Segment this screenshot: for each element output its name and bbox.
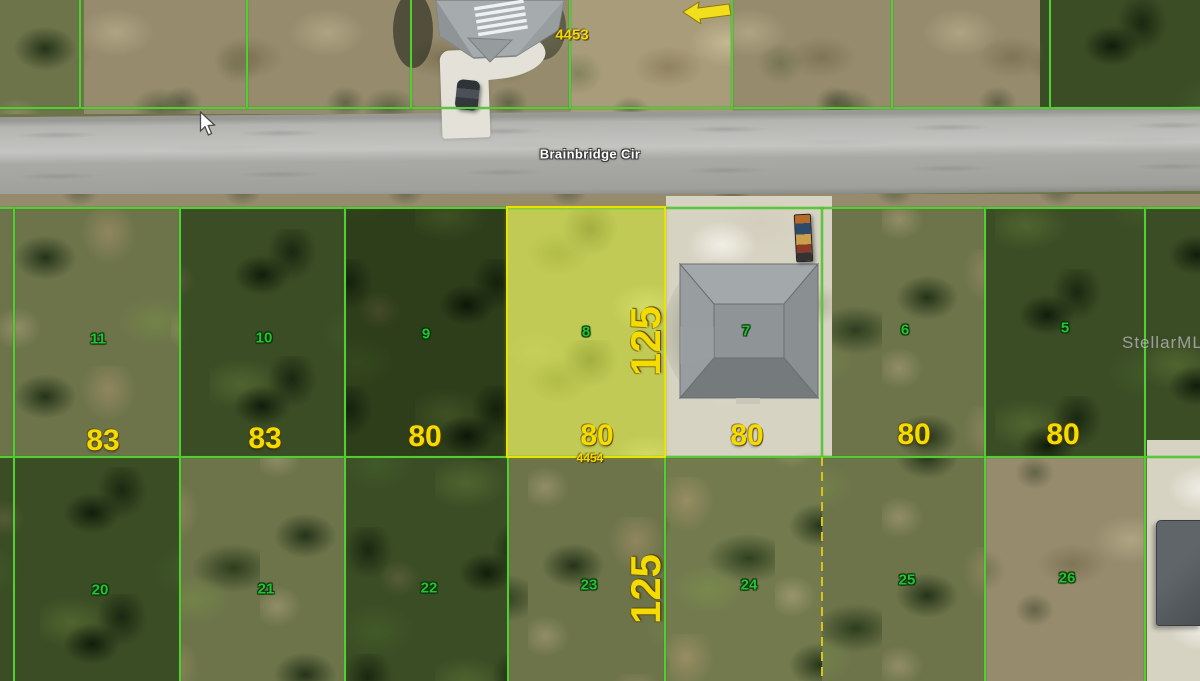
- terrain-lot-25: [822, 457, 985, 681]
- lot-width-9: 80: [408, 422, 441, 452]
- boundary-line: [1049, 0, 1051, 108]
- street-name-label: Brainbridge Cir: [540, 148, 641, 161]
- lot-number-21: 21: [258, 582, 275, 597]
- truck: [794, 214, 813, 263]
- boundary-line: [891, 0, 893, 108]
- terrain-top-right-trees: [1040, 0, 1200, 114]
- terrain-top-left-trees: [0, 0, 84, 114]
- boundary-line-dashed: [821, 457, 823, 681]
- satellite-parcel-map[interactable]: Brainbridge Cir 4453 4454 11 10 9 8 7 6 …: [0, 0, 1200, 681]
- lot-number-22: 22: [421, 581, 438, 596]
- boundary-line: [569, 0, 571, 108]
- terrain-lot-21: [180, 457, 345, 681]
- lot-width-10: 83: [248, 424, 281, 454]
- mls-watermark: StellarMLS: [1122, 333, 1200, 353]
- boundary-line: [13, 207, 15, 681]
- lot-number-25: 25: [899, 573, 916, 588]
- boundary-line: [984, 207, 986, 681]
- parcel-id-4454: 4454: [577, 452, 604, 464]
- lot-number-8: 8: [582, 325, 590, 340]
- terrain-lot-20: [0, 457, 180, 681]
- lot-width-5: 80: [1046, 420, 1079, 450]
- lot-number-23: 23: [581, 578, 598, 593]
- parcel-id-4453: 4453: [555, 28, 588, 43]
- lot-number-20: 20: [92, 583, 109, 598]
- boundary-line: [246, 0, 248, 108]
- house-roof-top: [416, 0, 572, 84]
- boundary-line: [0, 107, 1200, 109]
- lot-number-26: 26: [1059, 571, 1076, 586]
- boundary-line: [344, 207, 346, 681]
- house-roof-bottom-right: [1156, 520, 1200, 626]
- boundary-line: [79, 0, 81, 108]
- terrain-lot-24: [665, 457, 822, 681]
- boundary-line: [410, 0, 412, 108]
- lot-width-8: 80: [580, 421, 613, 451]
- annotation-left-arrow-icon: [681, 0, 733, 24]
- boundary-line: [507, 457, 509, 681]
- lot-number-6: 6: [901, 323, 909, 338]
- lot-number-5: 5: [1061, 321, 1069, 336]
- lot-depth-back: 125: [625, 554, 667, 624]
- boundary-line: [1144, 207, 1146, 681]
- lot-width-7: 80: [730, 421, 763, 451]
- terrain-lot-22: [345, 457, 508, 681]
- lot-depth-front: 125: [625, 306, 667, 376]
- lot-number-9: 9: [422, 327, 430, 342]
- boundary-line: [821, 207, 823, 457]
- boundary-line: [179, 207, 181, 681]
- lot-number-24: 24: [741, 578, 758, 593]
- lot-width-11: 83: [86, 426, 119, 456]
- lot-width-6: 80: [897, 420, 930, 450]
- lot-number-11: 11: [90, 332, 106, 347]
- mouse-cursor-icon: [199, 111, 217, 138]
- lot-number-7: 7: [742, 324, 750, 339]
- lot-number-10: 10: [256, 331, 273, 346]
